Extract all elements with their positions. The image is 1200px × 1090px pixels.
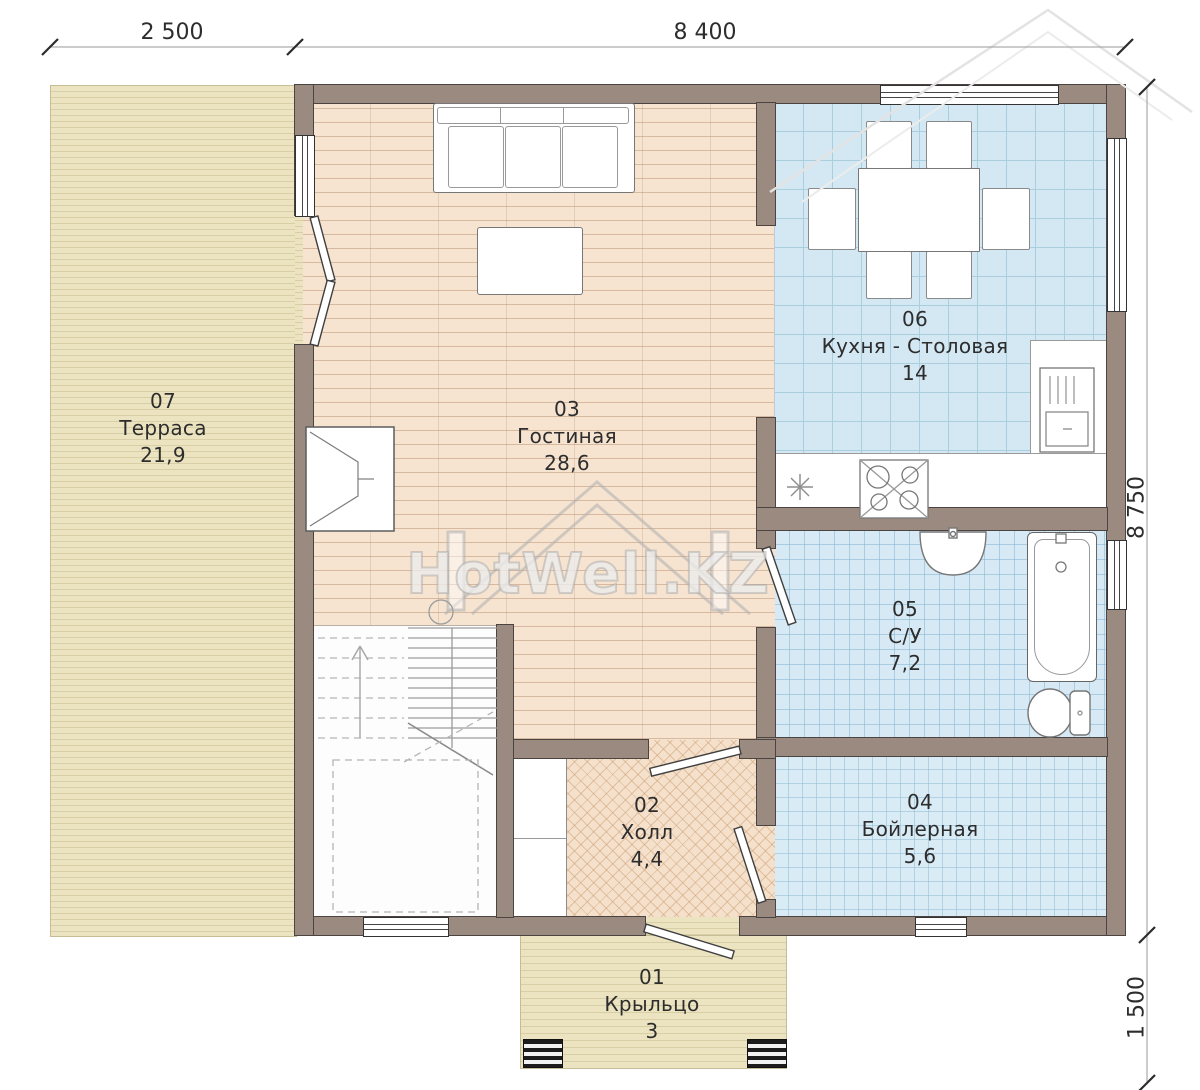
window-living-left [295, 135, 315, 217]
room-label-hall: 02 Холл 4,4 [587, 792, 707, 873]
window-stairs-bottom [363, 917, 449, 937]
wall-left-lower [295, 345, 313, 935]
room-number: 07 [83, 388, 243, 415]
room-name: С/У [845, 623, 965, 650]
room-number: 02 [587, 792, 707, 819]
dining-chair [926, 251, 972, 299]
room-area: 21,9 [83, 442, 243, 469]
wall-bottom-left [295, 917, 645, 935]
room-label-terrace: 07 Терраса 21,9 [83, 388, 243, 469]
dimension-right-main: 8 750 [1125, 453, 1150, 563]
sofa-seat-1 [448, 126, 504, 188]
wall-living-bath [757, 628, 775, 825]
bathtub-basin [1034, 539, 1090, 675]
room-name: Холл [587, 819, 707, 846]
room-label-porch: 01 Крыльцо 3 [572, 964, 732, 1045]
room-name: Крыльцо [572, 991, 732, 1018]
dimension-right-porch: 1 500 [1125, 953, 1150, 1063]
window-kitchen-right [1107, 138, 1127, 312]
wall-hall-top-b [740, 740, 775, 758]
dining-chair [808, 188, 856, 250]
porch-step-left [523, 1039, 563, 1068]
room-label-boiler: 04 Бойлерная 5,6 [830, 789, 1010, 870]
room-number: 05 [845, 596, 965, 623]
room-name: Гостиная [487, 423, 647, 450]
watermark-text: HotWell.KZ [388, 542, 788, 607]
dining-chair [982, 188, 1030, 250]
room-area: 3 [572, 1018, 732, 1045]
dining-chair [866, 121, 912, 169]
window-boiler-bottom [915, 917, 967, 937]
stairs-area [313, 625, 497, 918]
wall-living-kitchen-a [757, 103, 775, 225]
room-label-bathroom: 05 С/У 7,2 [845, 596, 965, 677]
front-door-threshold [645, 917, 740, 935]
room-area: 5,6 [830, 843, 1010, 870]
room-area: 28,6 [487, 450, 647, 477]
room-label-living: 03 Гостиная 28,6 [487, 396, 647, 477]
porch-step-right [747, 1039, 787, 1068]
wall-hall-top-a [497, 740, 648, 758]
floor-plan: HotWell.KZ 2 500 8 400 8 750 1 500 07 Те… [0, 0, 1200, 1090]
room-name: Терраса [83, 415, 243, 442]
sofa [433, 103, 635, 193]
dining-chair [866, 251, 912, 299]
wall-hall-boiler-stub [757, 900, 775, 917]
window-kitchen-top [880, 85, 1059, 105]
room-area: 7,2 [845, 650, 965, 677]
sofa-seat-3 [562, 126, 618, 188]
room-number: 04 [830, 789, 1010, 816]
dimension-top-left: 2 500 [102, 20, 242, 45]
room-number: 06 [790, 306, 1040, 333]
kitchen-counter-bottom [775, 453, 1109, 512]
room-terrace-floor [50, 85, 297, 937]
room-name: Кухня - Столовая [790, 333, 1040, 360]
room-number: 01 [572, 964, 732, 991]
hall-closet [513, 758, 567, 919]
coffee-table [477, 227, 583, 295]
wall-stairs [497, 625, 513, 917]
bathtub [1027, 532, 1097, 682]
wall-kitchen-bath [757, 508, 1107, 530]
room-area: 4,4 [587, 846, 707, 873]
room-area: 14 [790, 360, 1040, 387]
sofa-seat-2 [505, 126, 561, 188]
room-name: Бойлерная [830, 816, 1010, 843]
room-number: 03 [487, 396, 647, 423]
room-label-kitchen: 06 Кухня - Столовая 14 [790, 306, 1040, 387]
dining-table [858, 168, 980, 252]
dimension-top-right: 8 400 [635, 20, 775, 45]
dining-chair [926, 121, 972, 169]
wall-bath-boiler [757, 738, 1107, 756]
sofa-back [437, 107, 629, 124]
